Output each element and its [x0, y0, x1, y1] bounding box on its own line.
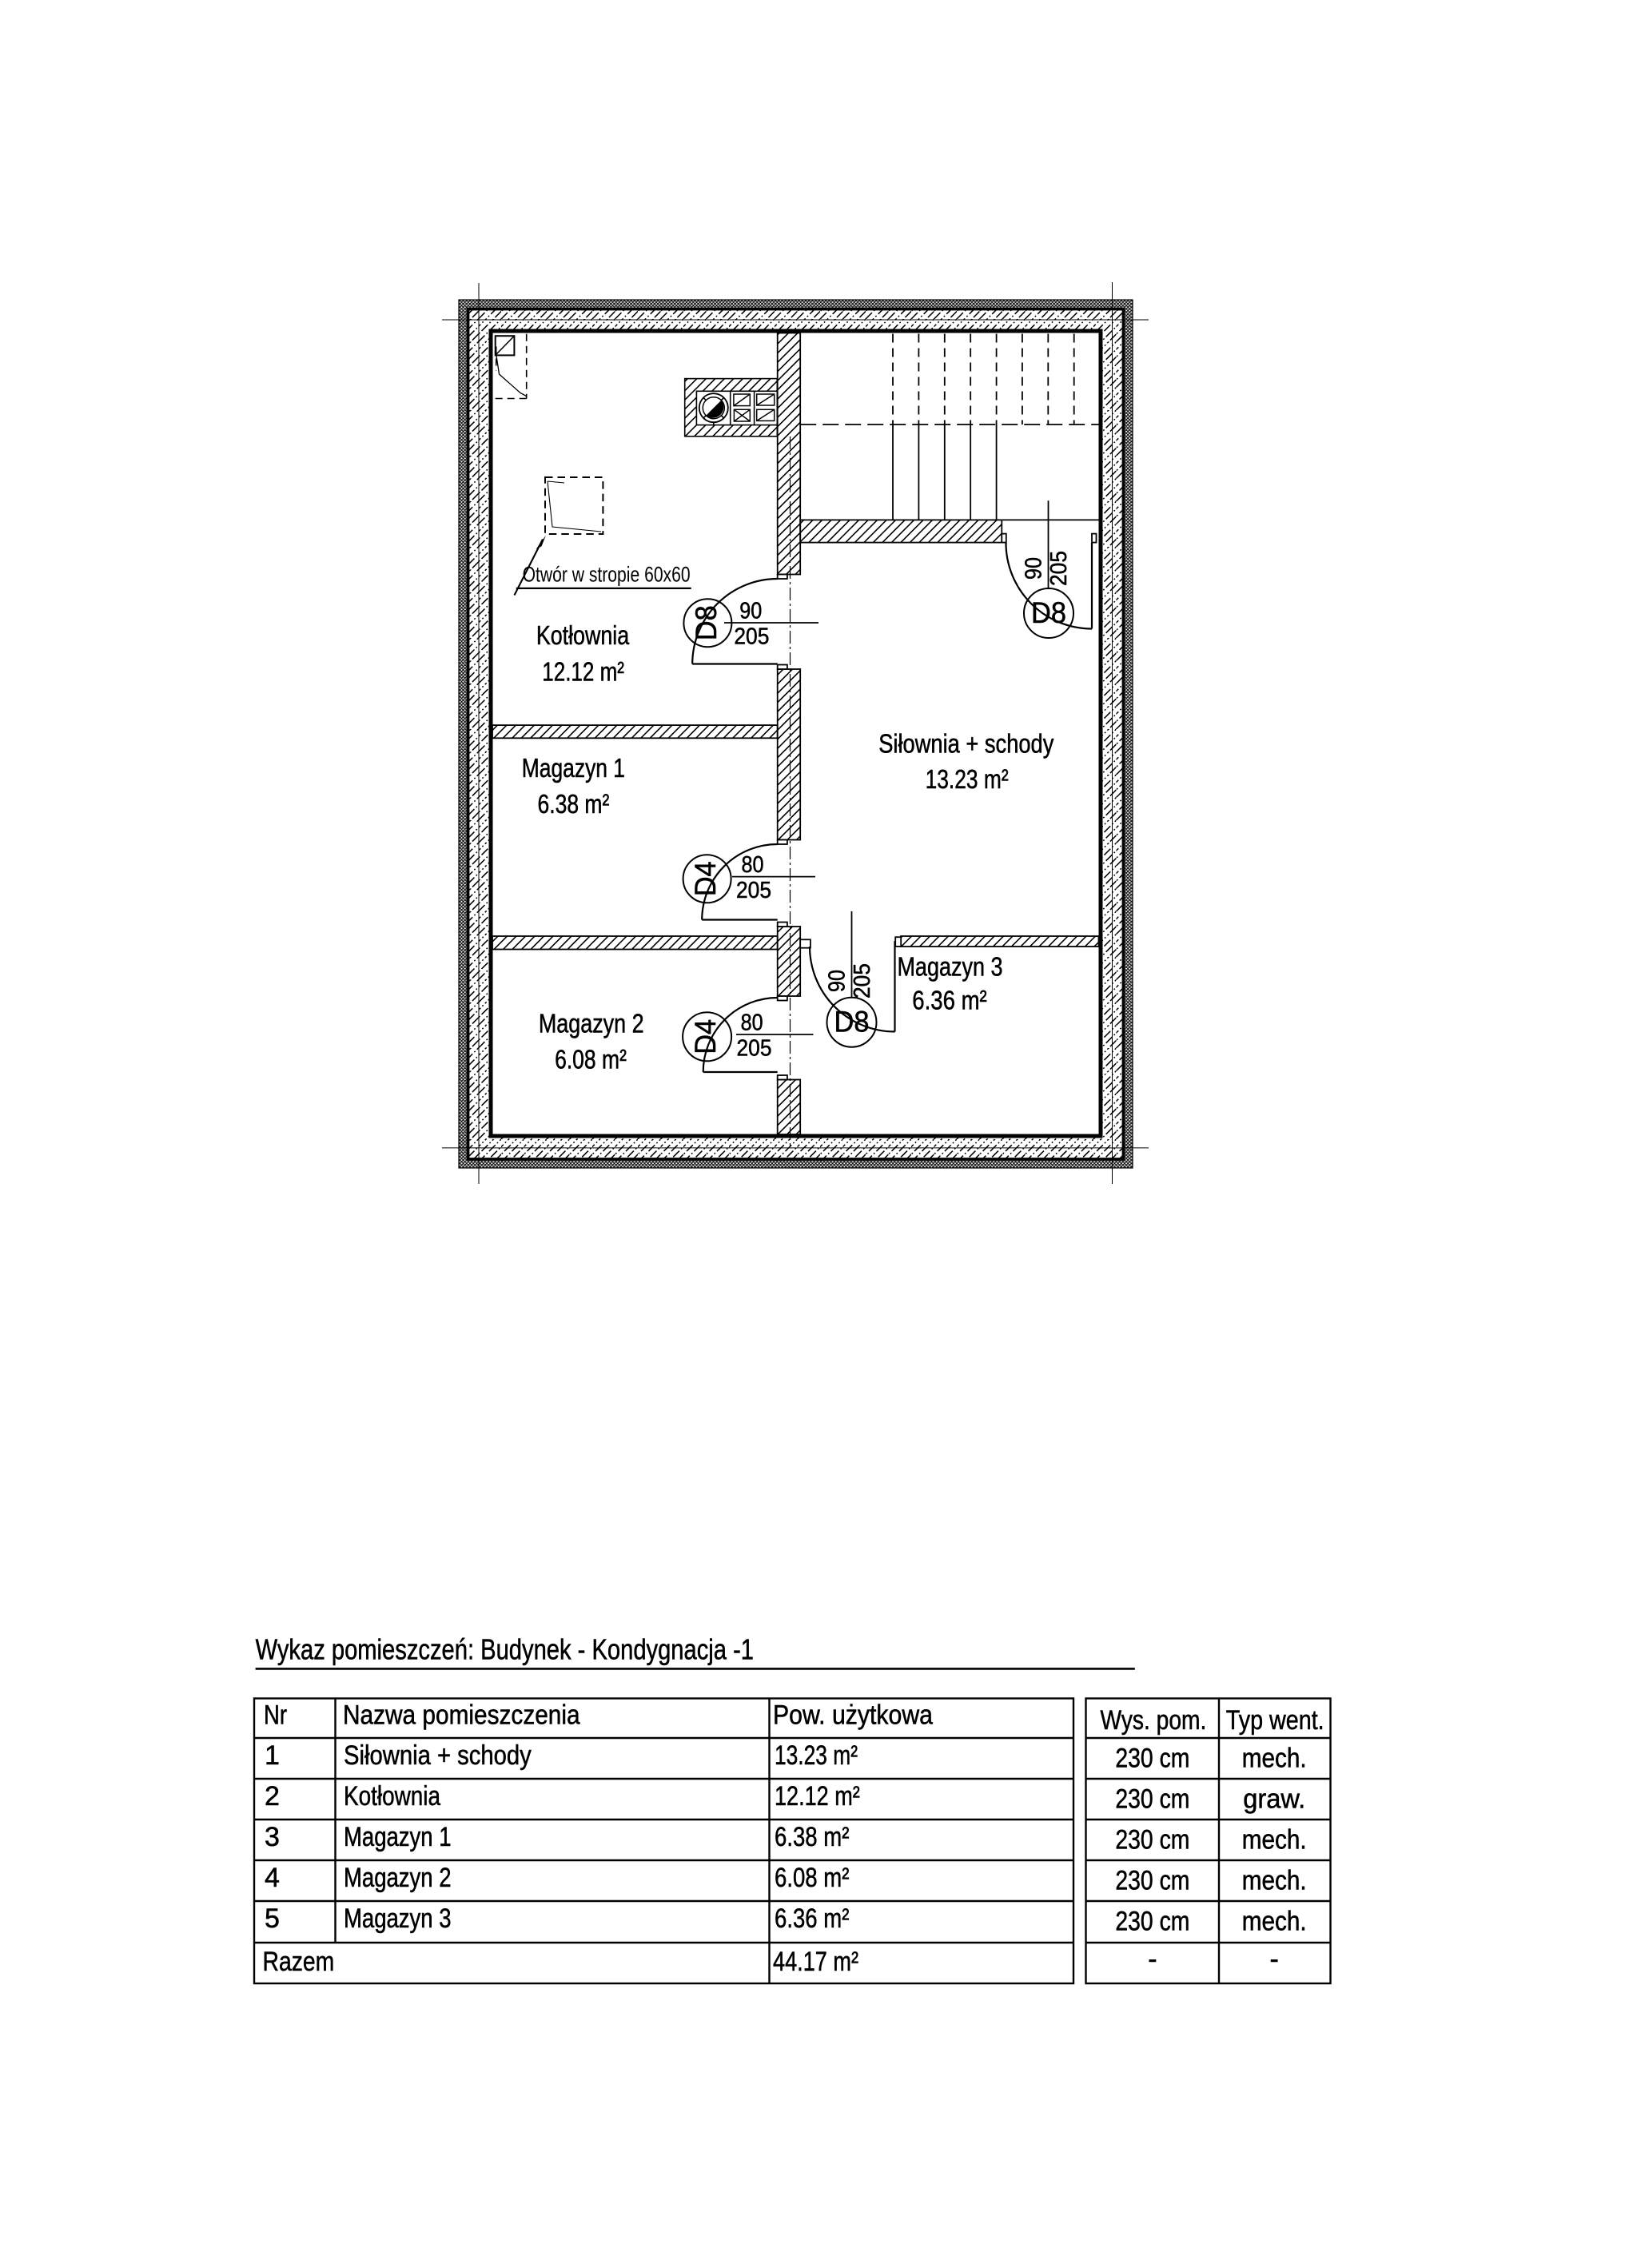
svg-text:mech.: mech. [1242, 1907, 1307, 1937]
svg-text:230 cm: 230 cm [1115, 1866, 1189, 1896]
svg-text:205: 205 [734, 624, 769, 649]
svg-text:Wykaz pomieszczeń: Budynek - K: Wykaz pomieszczeń: Budynek - Kondygnacja… [256, 1633, 754, 1666]
svg-text:2: 2 [265, 1781, 280, 1812]
svg-text:Wys. pom.: Wys. pom. [1100, 1705, 1206, 1736]
svg-text:D8: D8 [1031, 596, 1066, 629]
svg-text:Nazwa pomieszczenia: Nazwa pomieszczenia [343, 1700, 580, 1731]
svg-text:D4: D4 [689, 861, 722, 896]
svg-text:90: 90 [825, 970, 850, 992]
svg-text:mech.: mech. [1242, 1866, 1307, 1896]
svg-text:6.08 m²: 6.08 m² [555, 1046, 627, 1075]
svg-text:12.12 m²: 12.12 m² [542, 658, 624, 688]
svg-text:44.17 m²: 44.17 m² [773, 1947, 858, 1977]
svg-text:Magazyn 3: Magazyn 3 [897, 953, 1002, 983]
svg-text:Pow. użytkowa: Pow. użytkowa [773, 1700, 933, 1731]
svg-text:Kotłownia: Kotłownia [344, 1781, 440, 1812]
svg-text:-: - [1270, 1944, 1279, 1975]
svg-text:205: 205 [1046, 551, 1072, 586]
svg-text:6.38 m²: 6.38 m² [775, 1822, 849, 1852]
svg-text:Magazyn 3: Magazyn 3 [344, 1903, 452, 1934]
svg-text:Magazyn 2: Magazyn 2 [344, 1863, 452, 1893]
svg-text:205: 205 [737, 1035, 772, 1061]
svg-text:6.38 m²: 6.38 m² [538, 790, 610, 819]
svg-text:Nr: Nr [264, 1700, 287, 1731]
svg-text:Kotłownia: Kotłownia [536, 621, 630, 651]
svg-text:13.23 m²: 13.23 m² [926, 765, 1009, 795]
svg-text:80: 80 [742, 852, 764, 878]
svg-text:6.36 m²: 6.36 m² [912, 987, 987, 1016]
svg-text:90: 90 [739, 599, 762, 624]
svg-text:230 cm: 230 cm [1115, 1784, 1189, 1815]
svg-text:D4: D4 [689, 1019, 722, 1054]
svg-text:mech.: mech. [1242, 1825, 1307, 1855]
svg-text:80: 80 [741, 1010, 763, 1036]
svg-text:230 cm: 230 cm [1115, 1825, 1189, 1855]
svg-text:3: 3 [265, 1822, 280, 1852]
svg-text:D8: D8 [834, 1006, 870, 1038]
svg-text:Siłownia + schody: Siłownia + schody [344, 1740, 532, 1771]
svg-text:205: 205 [850, 963, 875, 998]
svg-text:1: 1 [265, 1740, 280, 1771]
svg-text:Magazyn 1: Magazyn 1 [344, 1822, 452, 1852]
svg-text:230 cm: 230 cm [1115, 1907, 1189, 1937]
svg-text:graw.: graw. [1243, 1784, 1305, 1815]
svg-text:D8: D8 [690, 605, 723, 640]
svg-text:205: 205 [736, 878, 771, 903]
svg-text:mech.: mech. [1242, 1744, 1307, 1774]
svg-text:230 cm: 230 cm [1115, 1744, 1189, 1774]
svg-text:Razem: Razem [263, 1947, 335, 1977]
svg-text:12.12 m²: 12.12 m² [775, 1781, 860, 1812]
svg-text:Magazyn 2: Magazyn 2 [539, 1010, 644, 1039]
svg-text:Typ went.: Typ went. [1226, 1705, 1324, 1736]
svg-text:4: 4 [265, 1863, 280, 1893]
svg-text:6.08 m²: 6.08 m² [775, 1863, 849, 1893]
svg-text:6.36 m²: 6.36 m² [775, 1903, 849, 1934]
svg-text:5: 5 [265, 1903, 280, 1934]
svg-text:Otwór w stropie 60x60: Otwór w stropie 60x60 [523, 562, 691, 586]
svg-text:Magazyn 1: Magazyn 1 [522, 754, 625, 783]
svg-text:90: 90 [1022, 557, 1047, 580]
svg-text:Siłownia + schody: Siłownia + schody [878, 730, 1053, 759]
svg-text:13.23 m²: 13.23 m² [775, 1740, 858, 1771]
svg-text:-: - [1148, 1944, 1157, 1975]
